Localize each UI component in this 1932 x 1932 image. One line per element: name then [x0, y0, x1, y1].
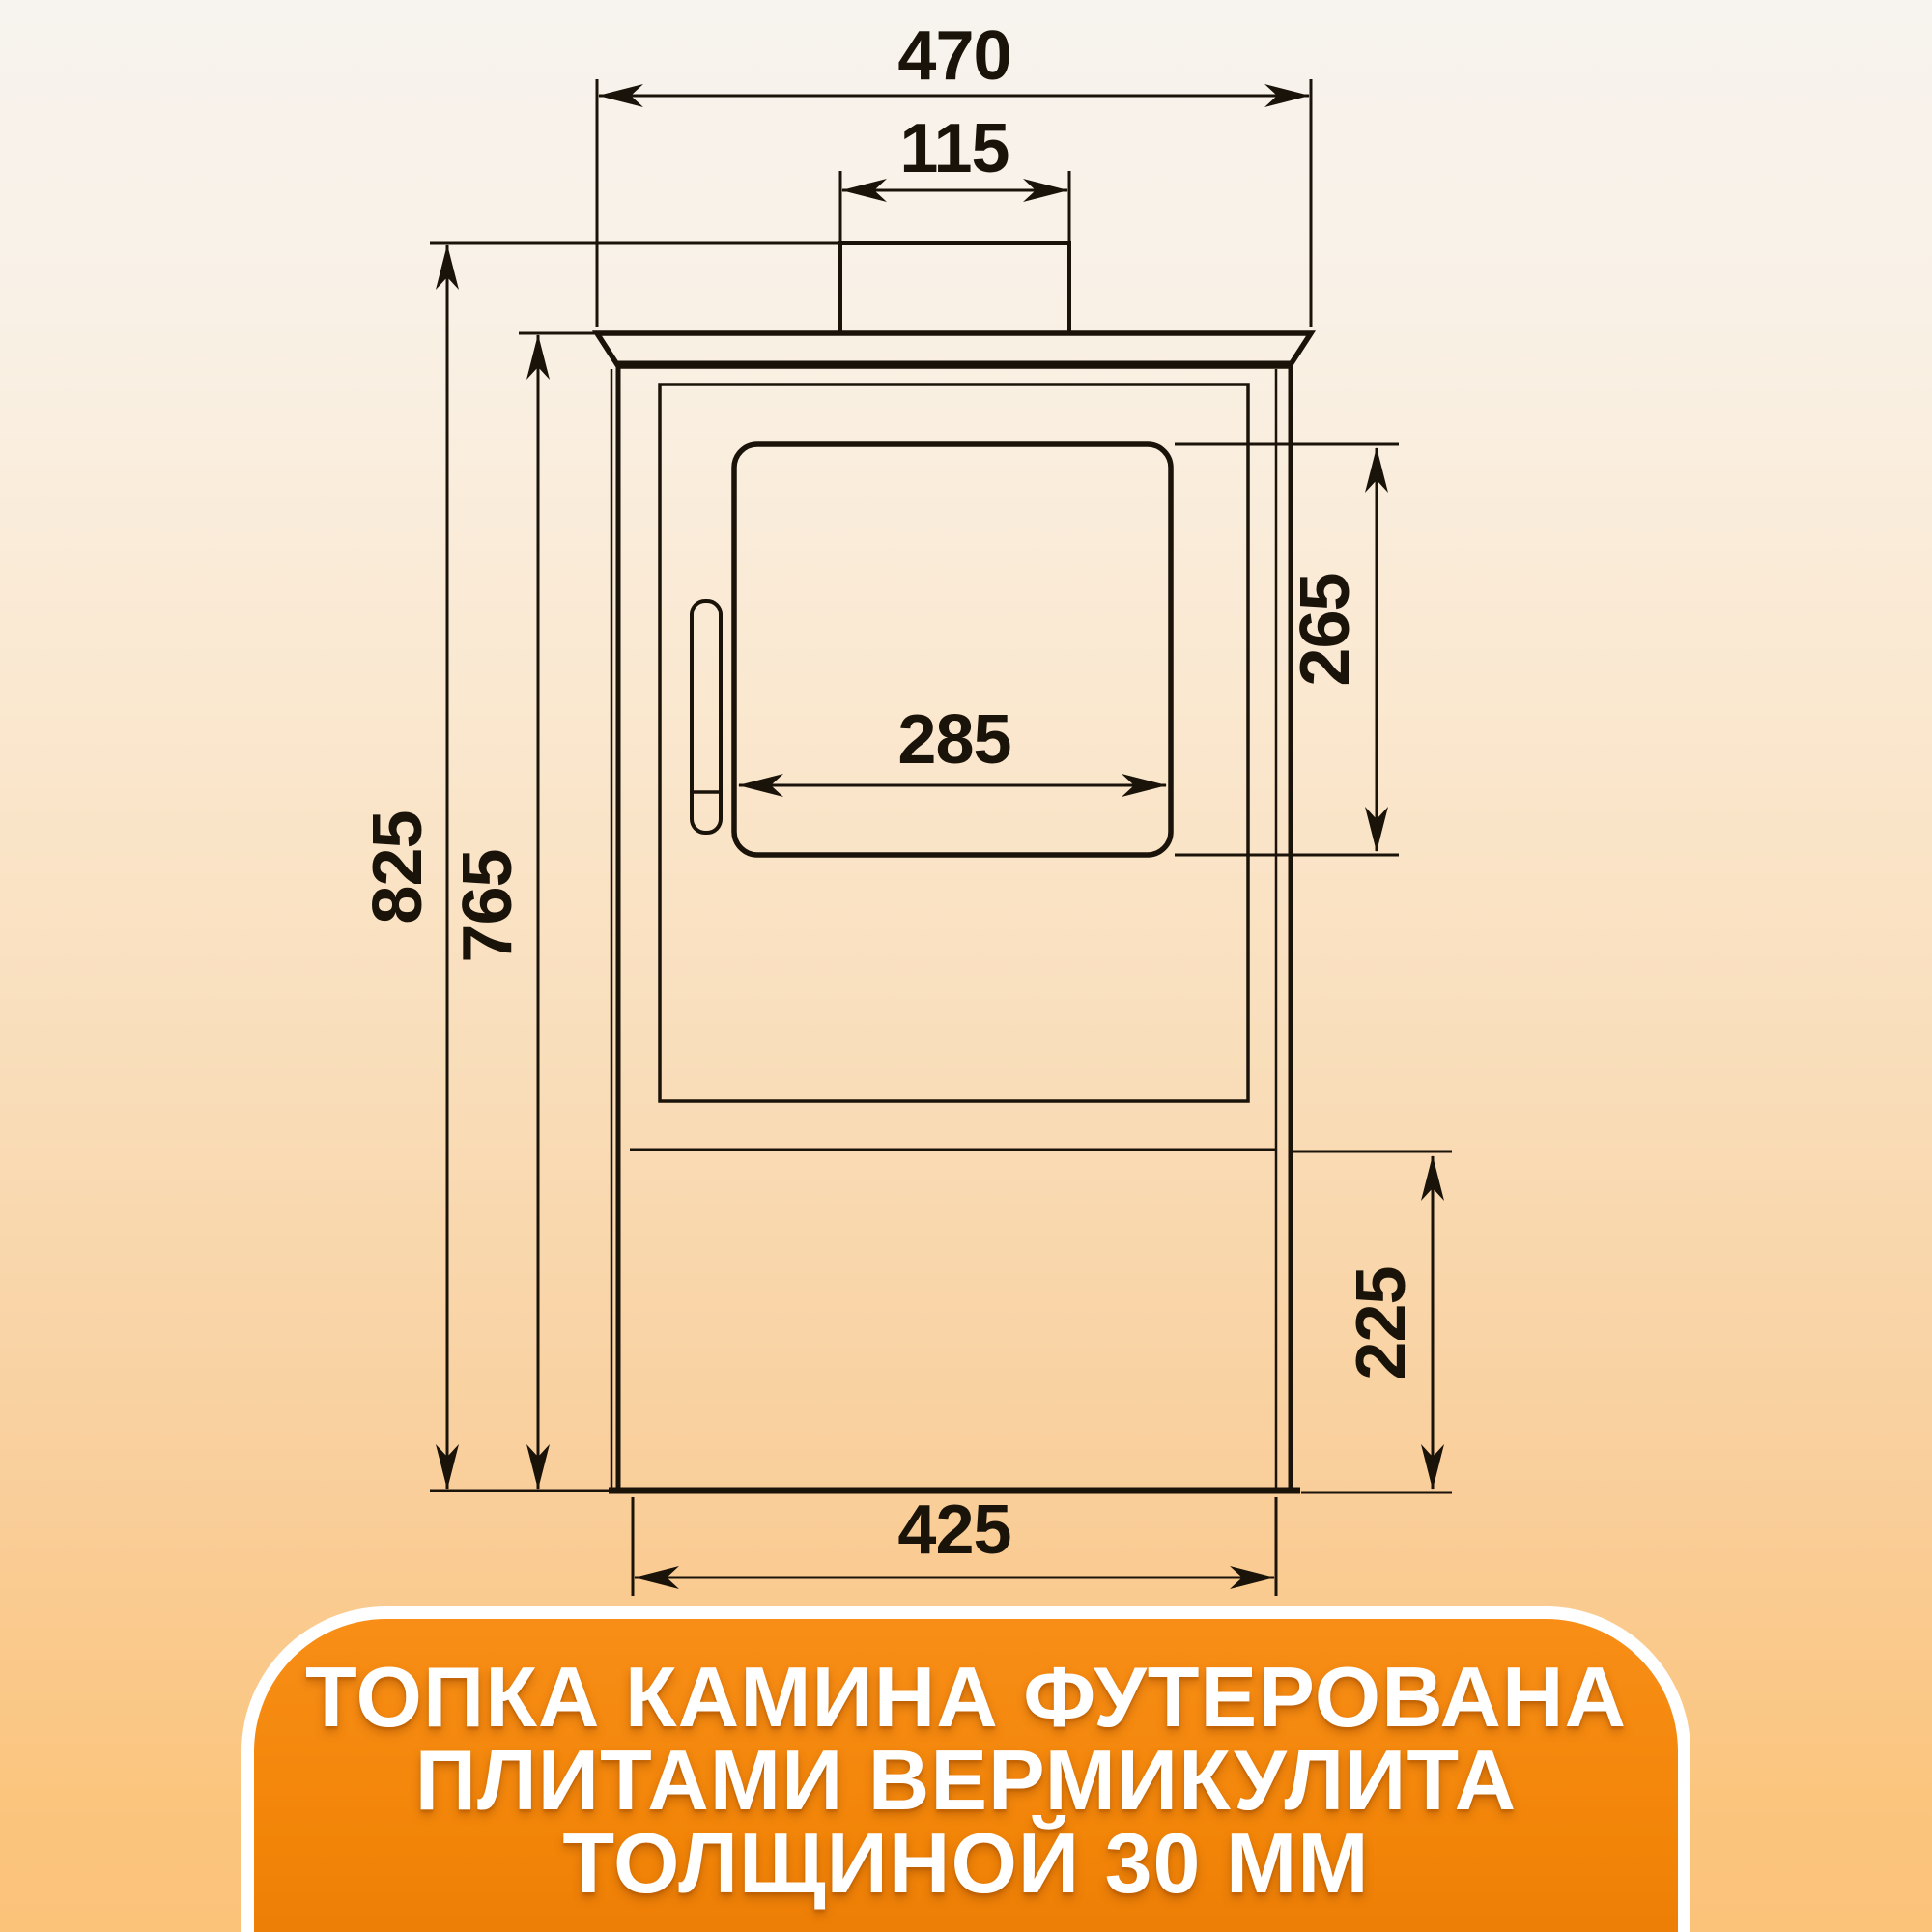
- dim-label-overall-height: 825: [359, 810, 437, 923]
- dimension-lines: [447, 96, 1433, 1577]
- banner-line-2: ПЛИТАМИ ВЕРМИКУЛИТА: [415, 1739, 1517, 1822]
- extension-lines: [430, 79, 1452, 1596]
- banner-line-1: ТОПКА КАМИНА ФУТЕРОВАНА: [305, 1656, 1627, 1739]
- dim-label-glass-height: 265: [1287, 573, 1364, 686]
- dim-label-pipe-width: 115: [899, 110, 1009, 187]
- door-glass-window: [734, 444, 1171, 855]
- dim-label-base-height: 225: [1343, 1266, 1420, 1379]
- dimension-labels: 470 115 825 765 285 265 225 425: [359, 17, 1420, 1569]
- info-banner: ТОПКА КАМИНА ФУТЕРОВАНА ПЛИТАМИ ВЕРМИКУЛ…: [241, 1606, 1690, 1932]
- dim-label-body-height: 765: [449, 849, 526, 962]
- stove-body: [618, 363, 1291, 1491]
- dim-label-glass-width: 285: [897, 701, 1010, 779]
- product-dimension-image: 470 115 825 765 285 265 225 425 ТОПКА КА…: [0, 0, 1932, 1932]
- dim-label-top-width: 470: [897, 17, 1010, 95]
- banner-line-3: ТОЛЩИНОЙ 30 ММ: [562, 1822, 1369, 1905]
- stove-outline: [597, 243, 1311, 1491]
- door-handle: [692, 601, 721, 833]
- flue-pipe: [840, 243, 1069, 333]
- dim-label-body-width: 425: [897, 1492, 1010, 1569]
